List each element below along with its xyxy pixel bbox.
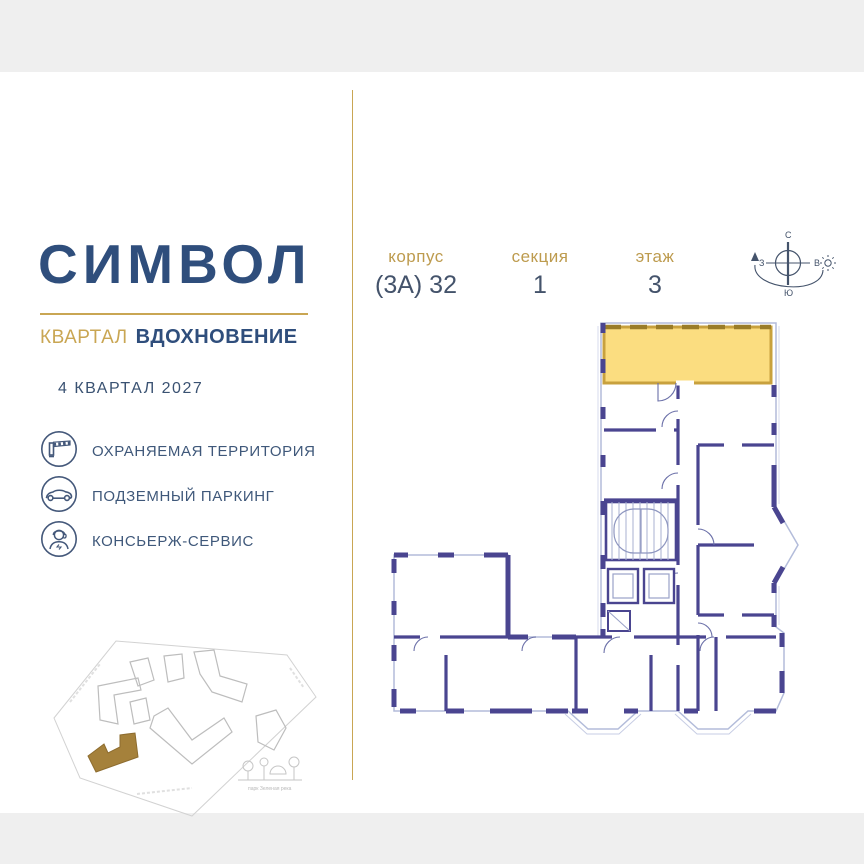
vertical-divider (352, 90, 353, 780)
district-name: ВДОХНОВЕНИЕ (136, 326, 298, 348)
amenity-row: ПОДЗЕМНЫЙ ПАРКИНГ (40, 477, 316, 515)
car-icon (40, 475, 78, 518)
svg-text:З: З (759, 258, 764, 268)
amenities-list: ОХРАНЯЕМАЯ ТЕРРИТОРИЯ ПОДЗЕМНЫЙ ПАРКИНГ (40, 432, 316, 560)
compass-icon: С Ю З В (742, 228, 836, 304)
logo-underline (40, 313, 308, 315)
concierge-icon (40, 520, 78, 563)
floor-plan (376, 315, 816, 767)
amenity-row: КОНСЬЕРЖ-СЕРВИС (40, 522, 316, 560)
spec-value: (3А) 32 (368, 271, 464, 300)
amenity-row: ОХРАНЯЕМАЯ ТЕРРИТОРИЯ (40, 432, 316, 470)
district-subtitle: КВАРТАЛВДОХНОВЕНИЕ (40, 326, 298, 349)
content-card: СИМВОЛ КВАРТАЛВДОХНОВЕНИЕ 4 КВАРТАЛ 2027… (0, 72, 864, 813)
minimap-highlighted-building (88, 733, 138, 772)
sun-icon (820, 255, 836, 271)
listing-floorplan-image: { "brand": { "name": "СИМВОЛ", "district… (0, 0, 864, 864)
spec-sekcia: секция 1 (492, 247, 588, 300)
spec-etazh: этаж 3 (607, 247, 703, 300)
site-minimap: парк Зеленая река (42, 624, 328, 834)
spec-label: этаж (607, 247, 703, 267)
barrier-icon (40, 430, 78, 473)
spec-value: 3 (607, 271, 703, 300)
district-label: КВАРТАЛ (40, 327, 128, 348)
interior-walls (394, 383, 776, 711)
brand-logo: СИМВОЛ (38, 232, 311, 296)
amenity-label: КОНСЬЕРЖ-СЕРВИС (92, 533, 254, 550)
svg-text:С: С (785, 230, 792, 240)
spec-label: корпус (368, 247, 464, 267)
spec-label: секция (492, 247, 588, 267)
highlighted-unit (604, 327, 771, 383)
amenity-label: ПОДЗЕМНЫЙ ПАРКИНГ (92, 488, 274, 505)
stair-core (606, 502, 676, 560)
spec-value: 1 (492, 271, 588, 300)
shaft (608, 611, 630, 631)
amenity-label: ОХРАНЯЕМАЯ ТЕРРИТОРИЯ (92, 443, 316, 460)
elevators (608, 569, 674, 603)
park-label: парк Зеленая река (248, 786, 292, 792)
completion-date: 4 КВАРТАЛ 2027 (58, 380, 203, 398)
svg-text:Ю: Ю (784, 288, 793, 298)
svg-text:В: В (814, 258, 820, 268)
spec-korpus: корпус (3А) 32 (368, 247, 464, 300)
